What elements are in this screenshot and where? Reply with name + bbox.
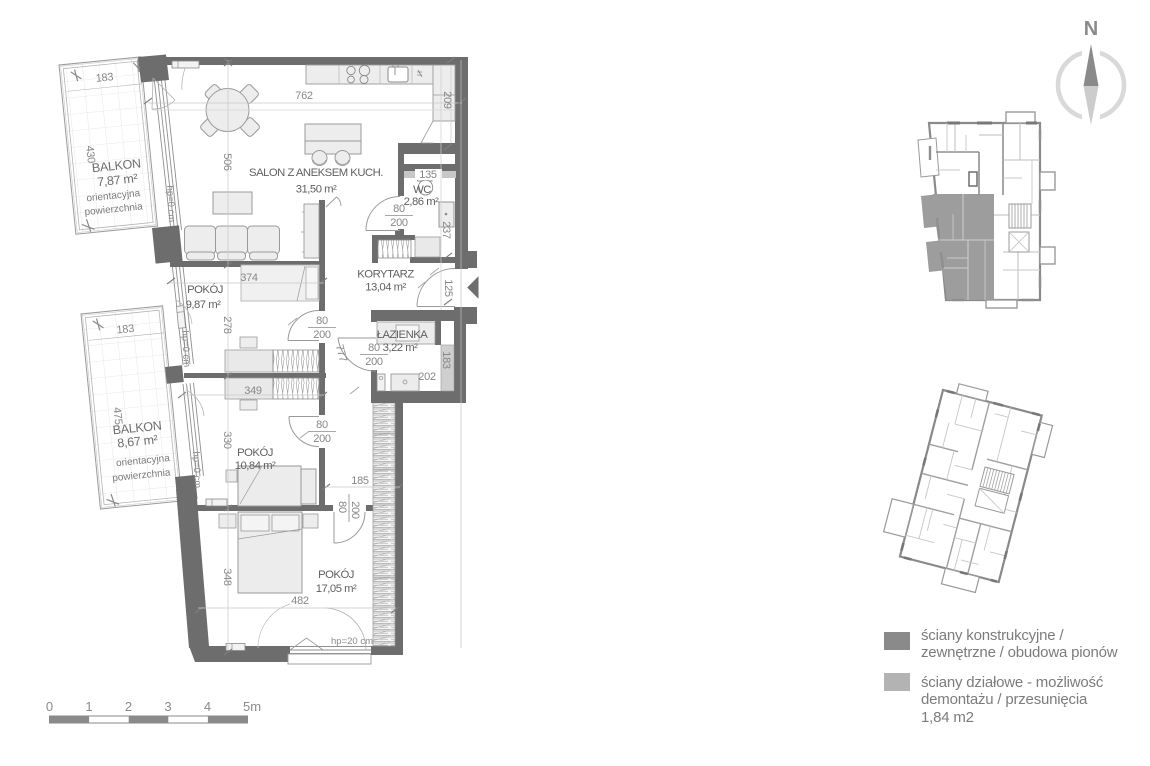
svg-text:777: 777 <box>333 343 349 363</box>
svg-text:ŁAZIENKA: ŁAZIENKA <box>377 329 429 341</box>
svg-text:POKÓJ: POKÓJ <box>237 446 273 459</box>
svg-text:10,84 m²: 10,84 m² <box>235 460 276 472</box>
svg-text:237: 237 <box>440 221 452 239</box>
svg-text:3: 3 <box>164 699 171 714</box>
svg-text:183: 183 <box>95 71 114 85</box>
svg-text:202: 202 <box>418 371 436 383</box>
svg-text:125: 125 <box>442 279 454 297</box>
svg-text:762: 762 <box>295 90 313 102</box>
svg-text:5m: 5m <box>243 699 261 714</box>
svg-text:hp=0 cm: hp=0 cm <box>179 330 192 367</box>
svg-text:80: 80 <box>316 419 328 431</box>
svg-text:278: 278 <box>221 316 233 334</box>
svg-text:1,84 m2: 1,84 m2 <box>921 709 974 726</box>
svg-text:348: 348 <box>221 568 233 586</box>
svg-text:200: 200 <box>313 433 331 445</box>
svg-text:ściany konstrukcyjne /: ściany konstrukcyjne / <box>921 627 1064 644</box>
svg-text:209: 209 <box>441 91 453 109</box>
svg-text:0: 0 <box>46 699 53 714</box>
svg-text:KORYTARZ: KORYTARZ <box>357 269 414 281</box>
svg-text:2,86 m²: 2,86 m² <box>404 196 440 208</box>
svg-text:200: 200 <box>313 329 331 341</box>
svg-text:9,87 m²: 9,87 m² <box>186 299 222 311</box>
svg-text:POKÓJ: POKÓJ <box>187 283 223 296</box>
svg-text:demontażu / przesunięcia: demontażu / przesunięcia <box>921 691 1088 708</box>
svg-text:1: 1 <box>85 699 92 714</box>
svg-text:hp=0 cm: hp=0 cm <box>164 185 177 222</box>
svg-text:135: 135 <box>419 169 437 181</box>
svg-text:200: 200 <box>365 356 383 368</box>
svg-text:183: 183 <box>116 323 135 337</box>
svg-text:482: 482 <box>291 595 309 607</box>
svg-text:2: 2 <box>125 699 132 714</box>
svg-text:200: 200 <box>349 501 361 519</box>
svg-text:330: 330 <box>221 431 233 449</box>
svg-text:zewnętrzne / obudowa pionów: zewnętrzne / obudowa pionów <box>921 644 1118 661</box>
svg-text:374: 374 <box>240 272 258 284</box>
svg-text:N: N <box>1084 18 1098 40</box>
svg-text:80: 80 <box>336 501 348 513</box>
svg-text:200: 200 <box>390 217 408 229</box>
svg-text:183: 183 <box>440 351 452 369</box>
svg-text:506: 506 <box>221 153 233 171</box>
svg-text:4: 4 <box>204 699 211 714</box>
svg-text:WC: WC <box>413 184 431 196</box>
svg-text:hp=0 cm: hp=0 cm <box>190 451 203 488</box>
svg-text:80: 80 <box>368 342 380 354</box>
svg-text:17,05 m²: 17,05 m² <box>316 583 357 595</box>
svg-text:ściany działowe - możliwość: ściany działowe - możliwość <box>921 674 1104 691</box>
svg-text:185: 185 <box>351 475 369 487</box>
svg-text:hp=20 cm: hp=20 cm <box>331 636 373 647</box>
svg-text:POKÓJ: POKÓJ <box>318 568 354 581</box>
svg-text:SALON Z ANEKSEM KUCH.: SALON Z ANEKSEM KUCH. <box>249 167 383 179</box>
svg-text:80: 80 <box>316 315 328 327</box>
svg-text:13,04 m²: 13,04 m² <box>365 282 406 294</box>
svg-text:3,22 m²: 3,22 m² <box>383 342 419 354</box>
svg-text:31,50 m²: 31,50 m² <box>296 184 337 196</box>
